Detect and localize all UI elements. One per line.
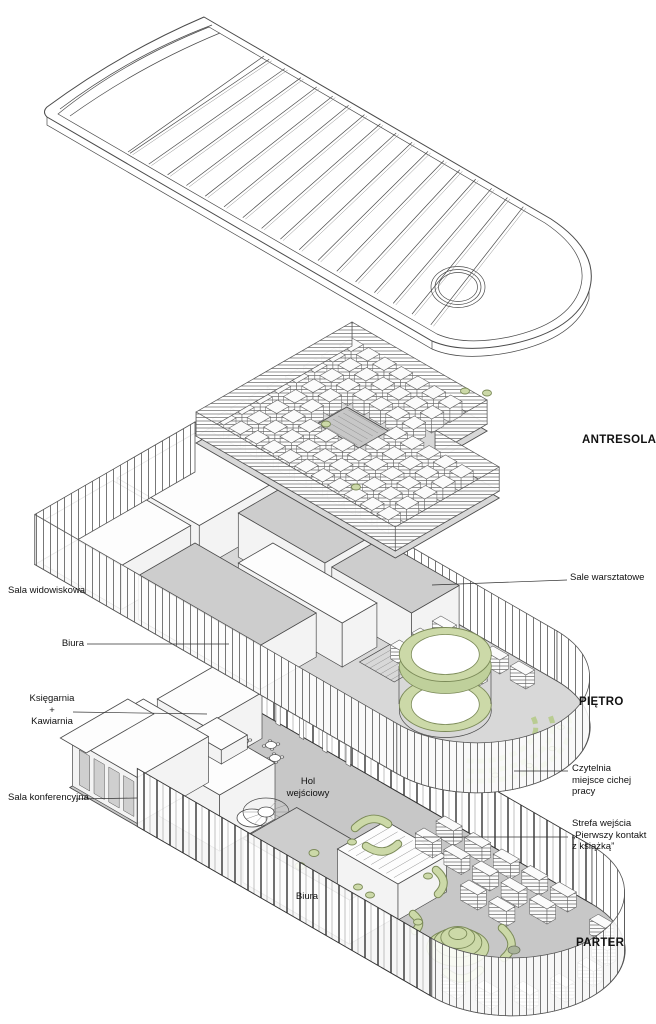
label-sala-konferencyjna: Sala konferencyjna: [8, 792, 89, 804]
diagram-page: ANTRESOLA PIĘTRO PARTER Sala widowiskowa…: [0, 0, 656, 1024]
axonometric-drawing: [0, 0, 656, 1024]
label-biura-pietro: Biura: [40, 638, 84, 650]
label-sala-widowiskowa: Sala widowiskowa: [8, 585, 85, 597]
label-biura-parter: Biura: [282, 891, 332, 903]
label-sale-warsztatowe: Sale warsztatowe: [570, 572, 644, 584]
roof-level: [45, 17, 592, 356]
label-level-pietro: PIĘTRO: [579, 697, 624, 709]
label-level-antresola: ANTRESOLA: [582, 435, 656, 447]
label-ksiegarnia-kawiarnia: Księgarnia + Kawiarnia: [20, 693, 84, 728]
label-level-parter: PARTER: [576, 938, 624, 950]
label-hol-wejsciowy: Hol wejściowy: [277, 776, 339, 799]
label-czytelnia: Czytelnia miejsce cichej pracy: [572, 763, 656, 798]
exploded-levels: [35, 322, 625, 1016]
label-strefa-wejscia: Strefa wejścia „Pierwszy kontakt z książ…: [572, 818, 646, 853]
